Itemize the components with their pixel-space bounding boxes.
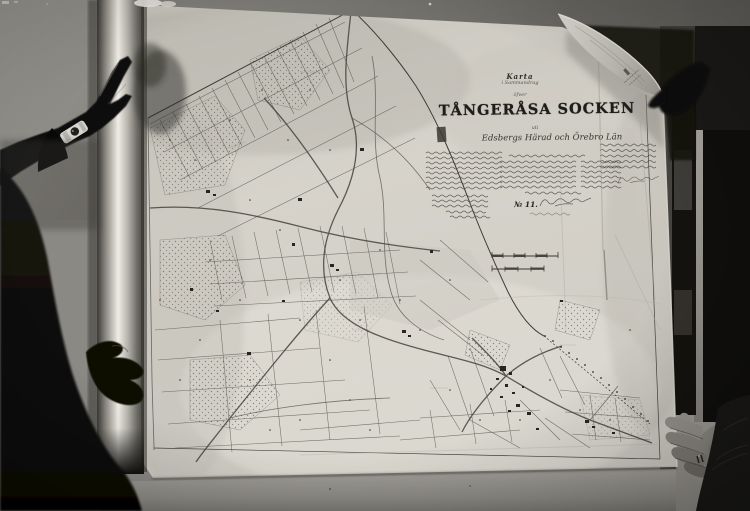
map-label-uti: uti <box>505 126 565 131</box>
map-title: TÅNGERÅSA SOCKEN <box>438 102 636 119</box>
vignette <box>0 0 750 511</box>
map-label-sammandrag: i Sammandrag <box>478 81 562 86</box>
photo-scene <box>0 0 750 511</box>
map-label-ofver: öfver <box>490 93 550 98</box>
photograph-of-parish-map: Karta i Sammandrag öfver TÅNGERÅSA SOCKE… <box>0 0 750 511</box>
map-label-karta: Karta <box>488 73 552 80</box>
map-subtitle: Edsbergs Härad och Örebro Län <box>468 133 636 143</box>
map-number: № 11. <box>504 201 548 209</box>
